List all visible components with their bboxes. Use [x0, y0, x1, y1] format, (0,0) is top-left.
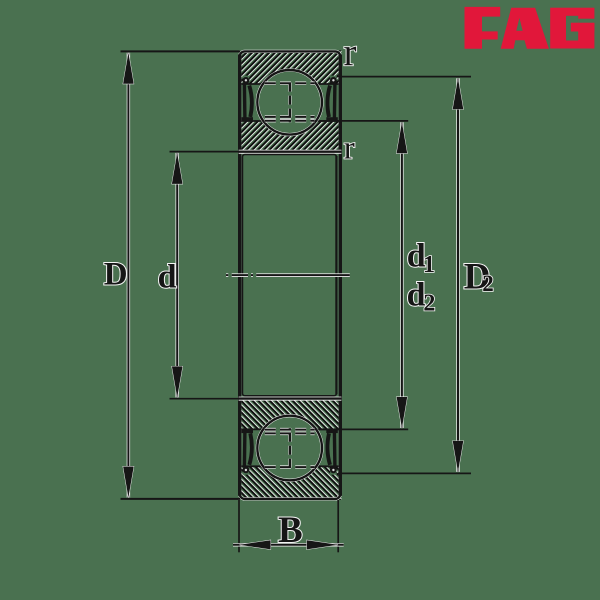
svg-text:B: B	[278, 510, 303, 551]
svg-text:d: d	[158, 259, 177, 296]
svg-text:r: r	[344, 131, 355, 167]
svg-text:2: 2	[423, 290, 435, 316]
svg-text:2: 2	[482, 271, 494, 296]
svg-text:r: r	[344, 31, 357, 74]
svg-text:D: D	[104, 256, 128, 292]
svg-text:1: 1	[423, 252, 435, 278]
